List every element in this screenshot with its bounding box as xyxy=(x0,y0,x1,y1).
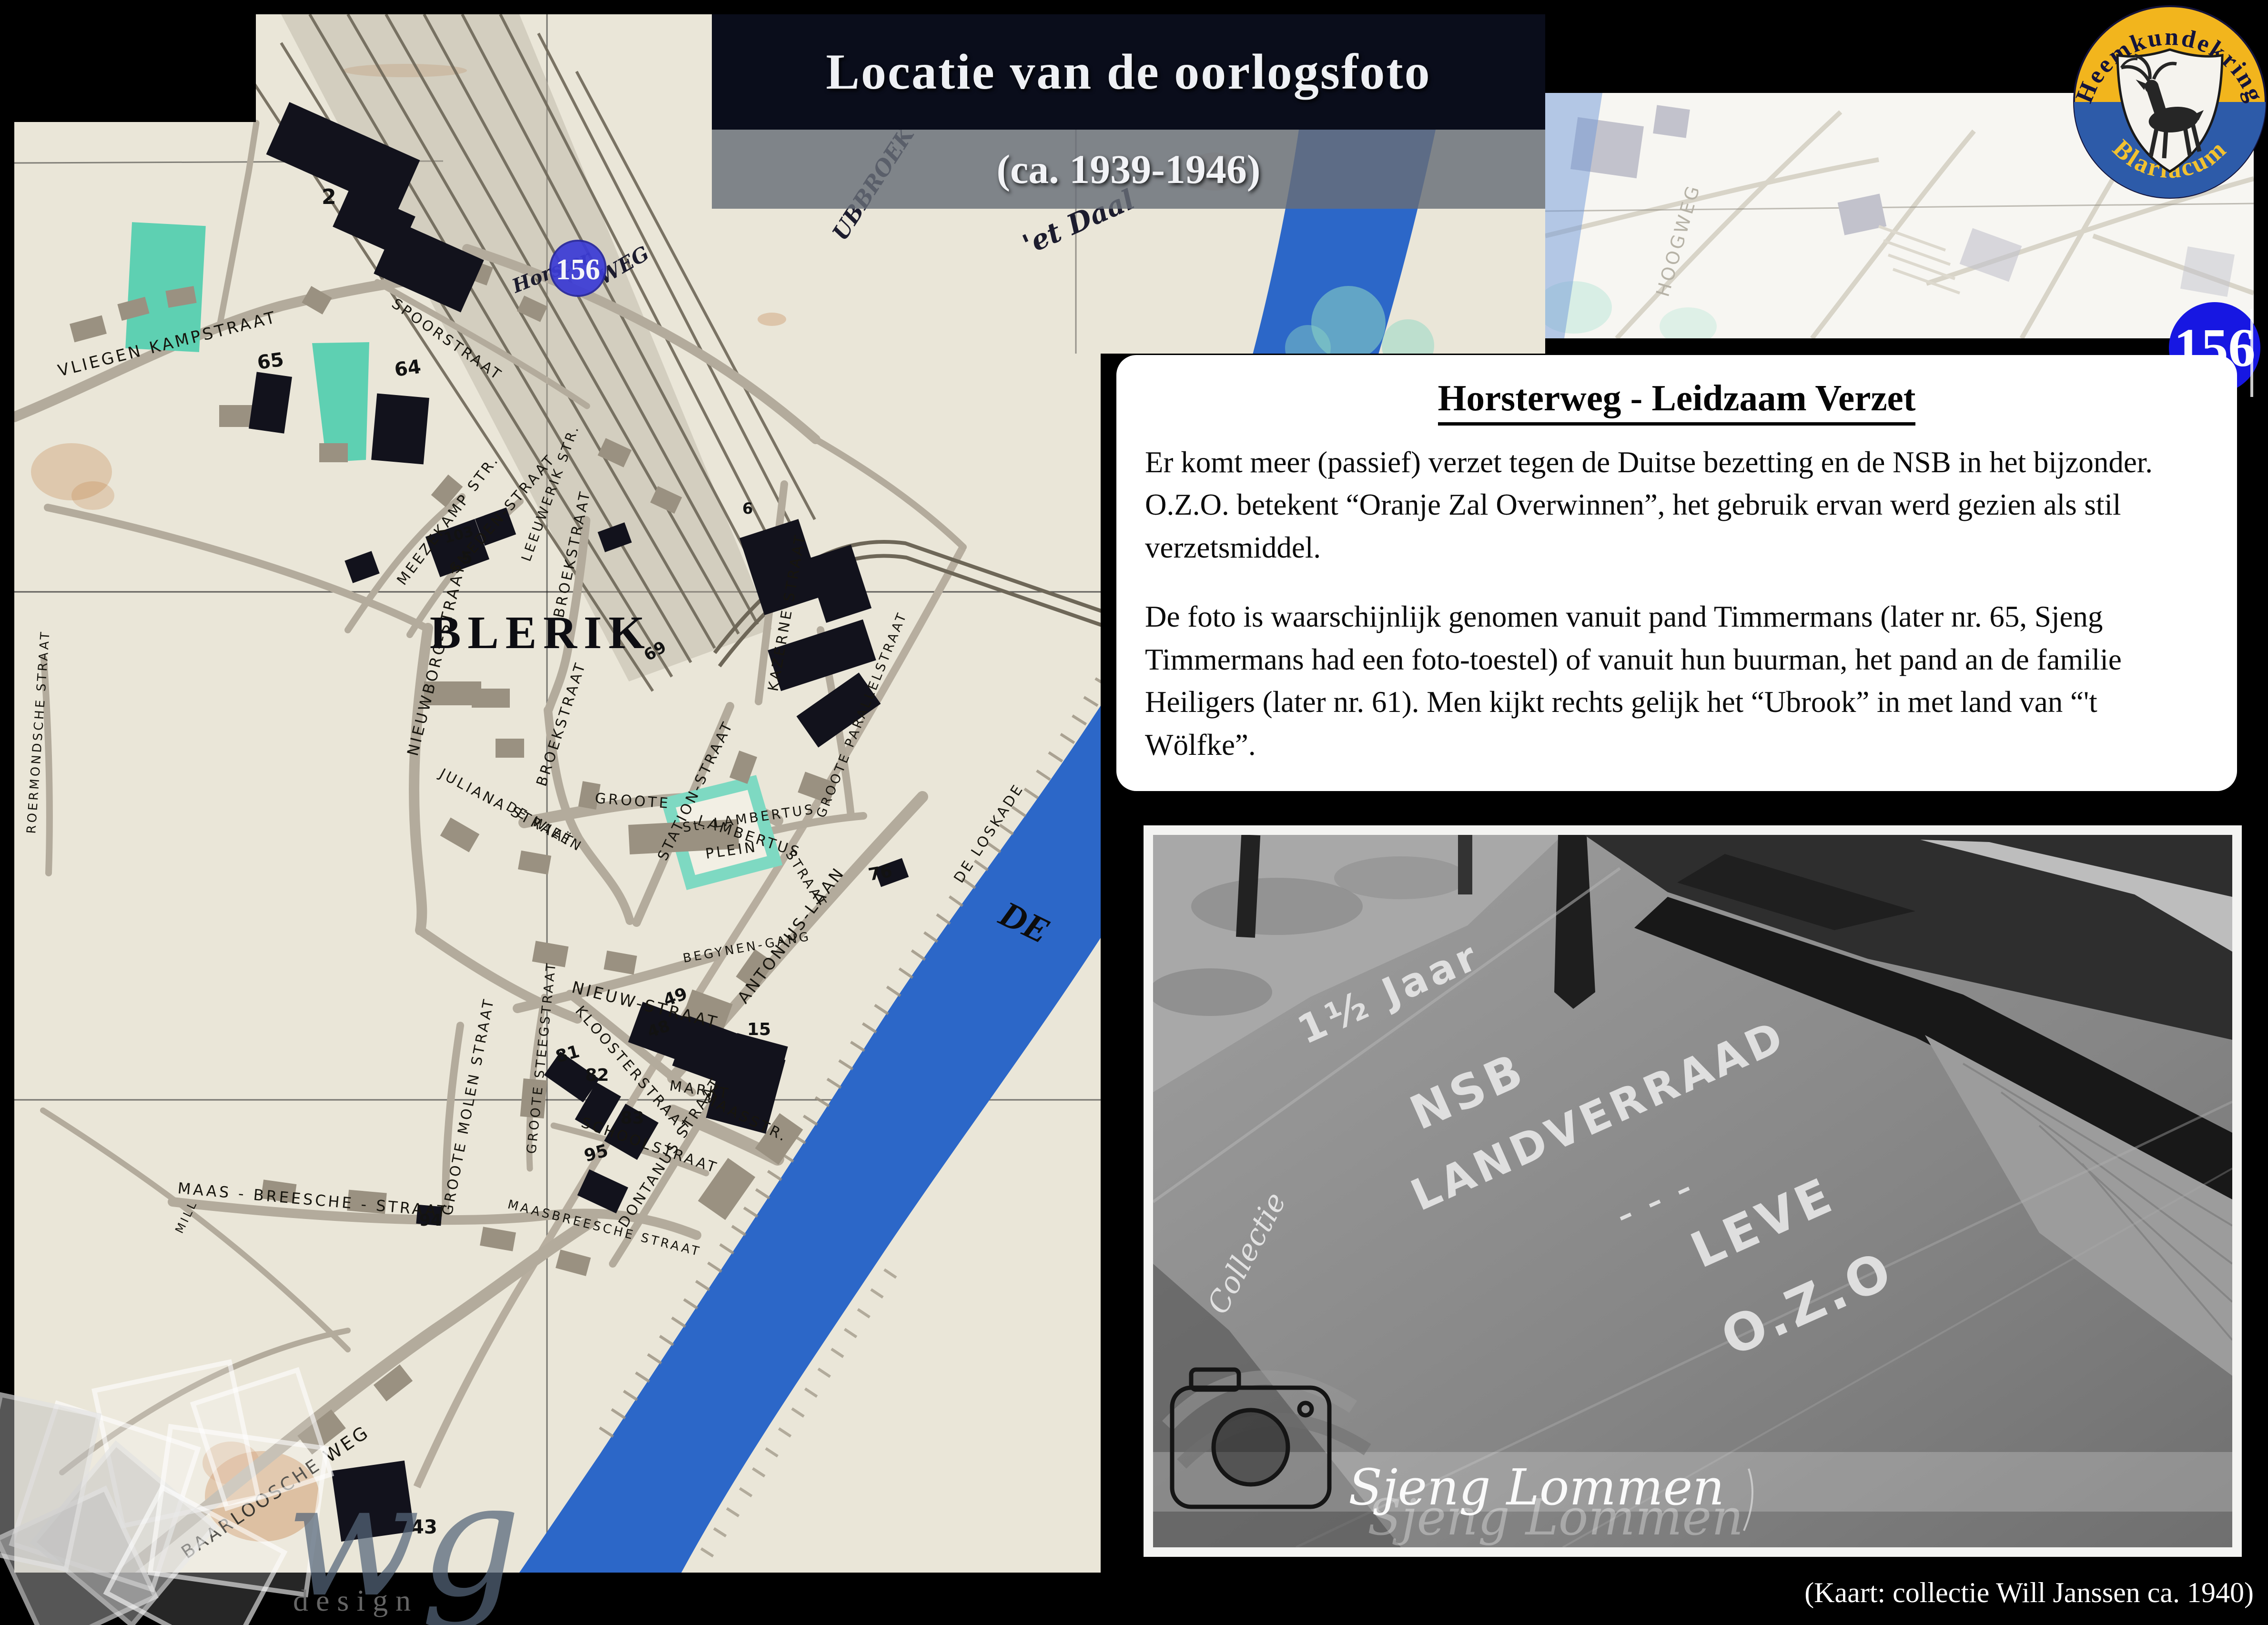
design-watermark-label: design xyxy=(293,1583,418,1618)
house-number-label: 2 xyxy=(322,185,336,209)
heemkundekring-logo: Heemkundekring Blariacum xyxy=(2072,4,2268,200)
war-photo: 1½ JaarNSBLANDVERRAAD– – –LEVEO.Z.O Coll… xyxy=(1153,835,2232,1547)
info-heading: Horsterweg - Leidzaam Verzet xyxy=(1145,377,2208,419)
house-number-label: 82 xyxy=(585,1066,609,1085)
house-number-label: 94 xyxy=(419,1211,442,1230)
house-number-label: 64 xyxy=(393,356,423,381)
house-number-label: 83 xyxy=(620,1108,644,1128)
title-banner: Locatie van de oorlogsfoto xyxy=(712,14,1545,130)
map-corner-mask xyxy=(14,14,256,122)
svg-text:156: 156 xyxy=(556,254,600,286)
right-edge-line xyxy=(2250,309,2253,397)
house-number-label: 5 xyxy=(461,548,473,568)
page-subtitle: (ca. 1939-1946) xyxy=(996,145,1260,193)
house-number-label: 15 xyxy=(747,1020,771,1039)
house-number-label: 65 xyxy=(256,349,285,374)
slide: VLIEGEN KAMPSTRAATSPOORSTRAATMEEZEKAMP S… xyxy=(0,0,2268,1625)
page-title: Locatie van de oorlogsfoto xyxy=(826,43,1431,101)
house-number-label: 76 xyxy=(867,862,893,885)
watermark-owner-ghost: Sjeng Lommen xyxy=(1367,1488,1743,1546)
subtitle-banner: (ca. 1939-1946) xyxy=(712,130,1545,209)
house-number-label: 6 xyxy=(742,499,753,518)
info-box: Horsterweg - Leidzaam Verzet Er komt mee… xyxy=(1116,355,2237,791)
map-source-caption: (Kaart: collectie Will Janssen ca. 1940) xyxy=(1634,1576,2254,1609)
info-paragraph-1: Er komt meer (passief) verzet tegen de D… xyxy=(1145,441,2208,569)
war-photo-frame: 1½ JaarNSBLANDVERRAAD– – –LEVEO.Z.O Coll… xyxy=(1144,825,2242,1557)
city-label: BLERIK xyxy=(430,607,651,659)
info-paragraph-2: De foto is waarschijnlijk genomen vanuit… xyxy=(1145,596,2208,766)
map-marker-156: 156 xyxy=(550,241,606,296)
